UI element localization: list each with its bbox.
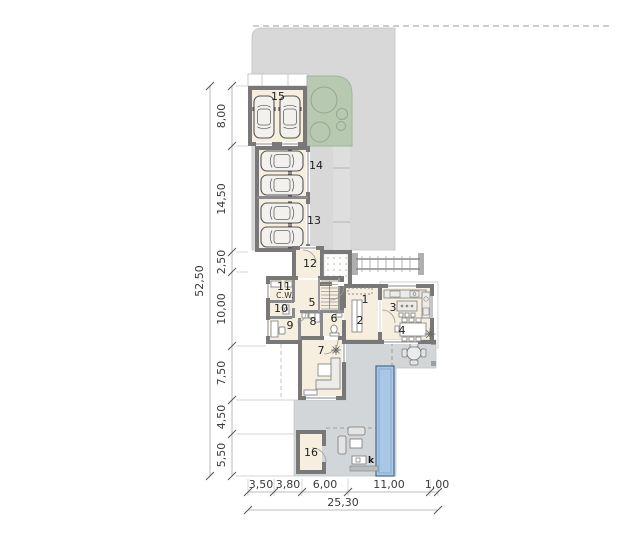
dim-bottom-3: 11,00 bbox=[373, 478, 405, 491]
car-icon bbox=[261, 225, 303, 248]
coffee-table bbox=[318, 364, 331, 376]
dim-left-5: 4,50 bbox=[215, 405, 228, 430]
utility-label-cw: C.W. bbox=[276, 291, 294, 300]
dim-bottom-1: 3,80 bbox=[276, 478, 301, 491]
dimension-bottom-total: 25,30 bbox=[244, 496, 442, 514]
room-label-2: 2 bbox=[357, 314, 364, 327]
dim-bottom-2: 6,00 bbox=[313, 478, 338, 491]
room-label-4: 4 bbox=[399, 324, 406, 337]
dim-left-2: 2,50 bbox=[215, 250, 228, 275]
dim-left-total: 52,50 bbox=[193, 265, 206, 297]
dim-left-4: 7,50 bbox=[215, 361, 228, 386]
floor-plan-page: 15 14 13 12 11 C.W. 10 5 9 8 6 2 1 3 4 7… bbox=[0, 0, 638, 556]
sideboard bbox=[304, 390, 317, 395]
room-label-8: 8 bbox=[310, 315, 317, 328]
dim-left-0: 8,00 bbox=[215, 104, 228, 129]
entry-steps-walkway bbox=[352, 253, 424, 275]
dim-bottom-0: 3,50 bbox=[249, 478, 274, 491]
plant-icon bbox=[425, 329, 436, 340]
room-label-9: 9 bbox=[287, 319, 294, 332]
grill-label-k: k bbox=[368, 456, 375, 466]
green-planting-bed bbox=[307, 76, 352, 146]
garage-14-13 bbox=[255, 146, 310, 252]
bench bbox=[350, 466, 378, 471]
car-icon bbox=[261, 149, 303, 172]
room-label-10: 10 bbox=[274, 302, 288, 315]
floor-plan-drawing: 15 14 13 12 11 C.W. 10 5 9 8 6 2 1 3 4 7… bbox=[0, 0, 638, 556]
room-label-1: 1 bbox=[362, 293, 369, 306]
room-label-16: 16 bbox=[304, 446, 318, 459]
dim-left-3: 10,00 bbox=[215, 293, 228, 325]
room-label-15: 15 bbox=[271, 90, 285, 103]
dim-bottom-4: 1,00 bbox=[425, 478, 450, 491]
car-icon bbox=[261, 201, 303, 224]
sidewalk-band bbox=[248, 74, 308, 86]
dimension-left-total: 52,50 bbox=[193, 82, 214, 480]
toilet-icon bbox=[331, 325, 337, 333]
dim-left-6: 5,50 bbox=[215, 443, 228, 468]
room-label-6: 6 bbox=[331, 312, 338, 325]
room-label-13: 13 bbox=[307, 214, 321, 227]
dim-left-1: 14,50 bbox=[215, 183, 228, 215]
room-label-12: 12 bbox=[303, 257, 317, 270]
grill-icon bbox=[352, 456, 366, 464]
room-label-14: 14 bbox=[309, 159, 323, 172]
room-label-7: 7 bbox=[318, 344, 325, 357]
car-icon bbox=[261, 173, 303, 196]
dim-bottom-total: 25,30 bbox=[327, 496, 359, 509]
room-label-5: 5 bbox=[309, 296, 316, 309]
dimension-bottom-chain: 3,50 3,80 6,00 11,00 1,00 bbox=[244, 478, 449, 496]
room-label-3: 3 bbox=[390, 301, 397, 314]
